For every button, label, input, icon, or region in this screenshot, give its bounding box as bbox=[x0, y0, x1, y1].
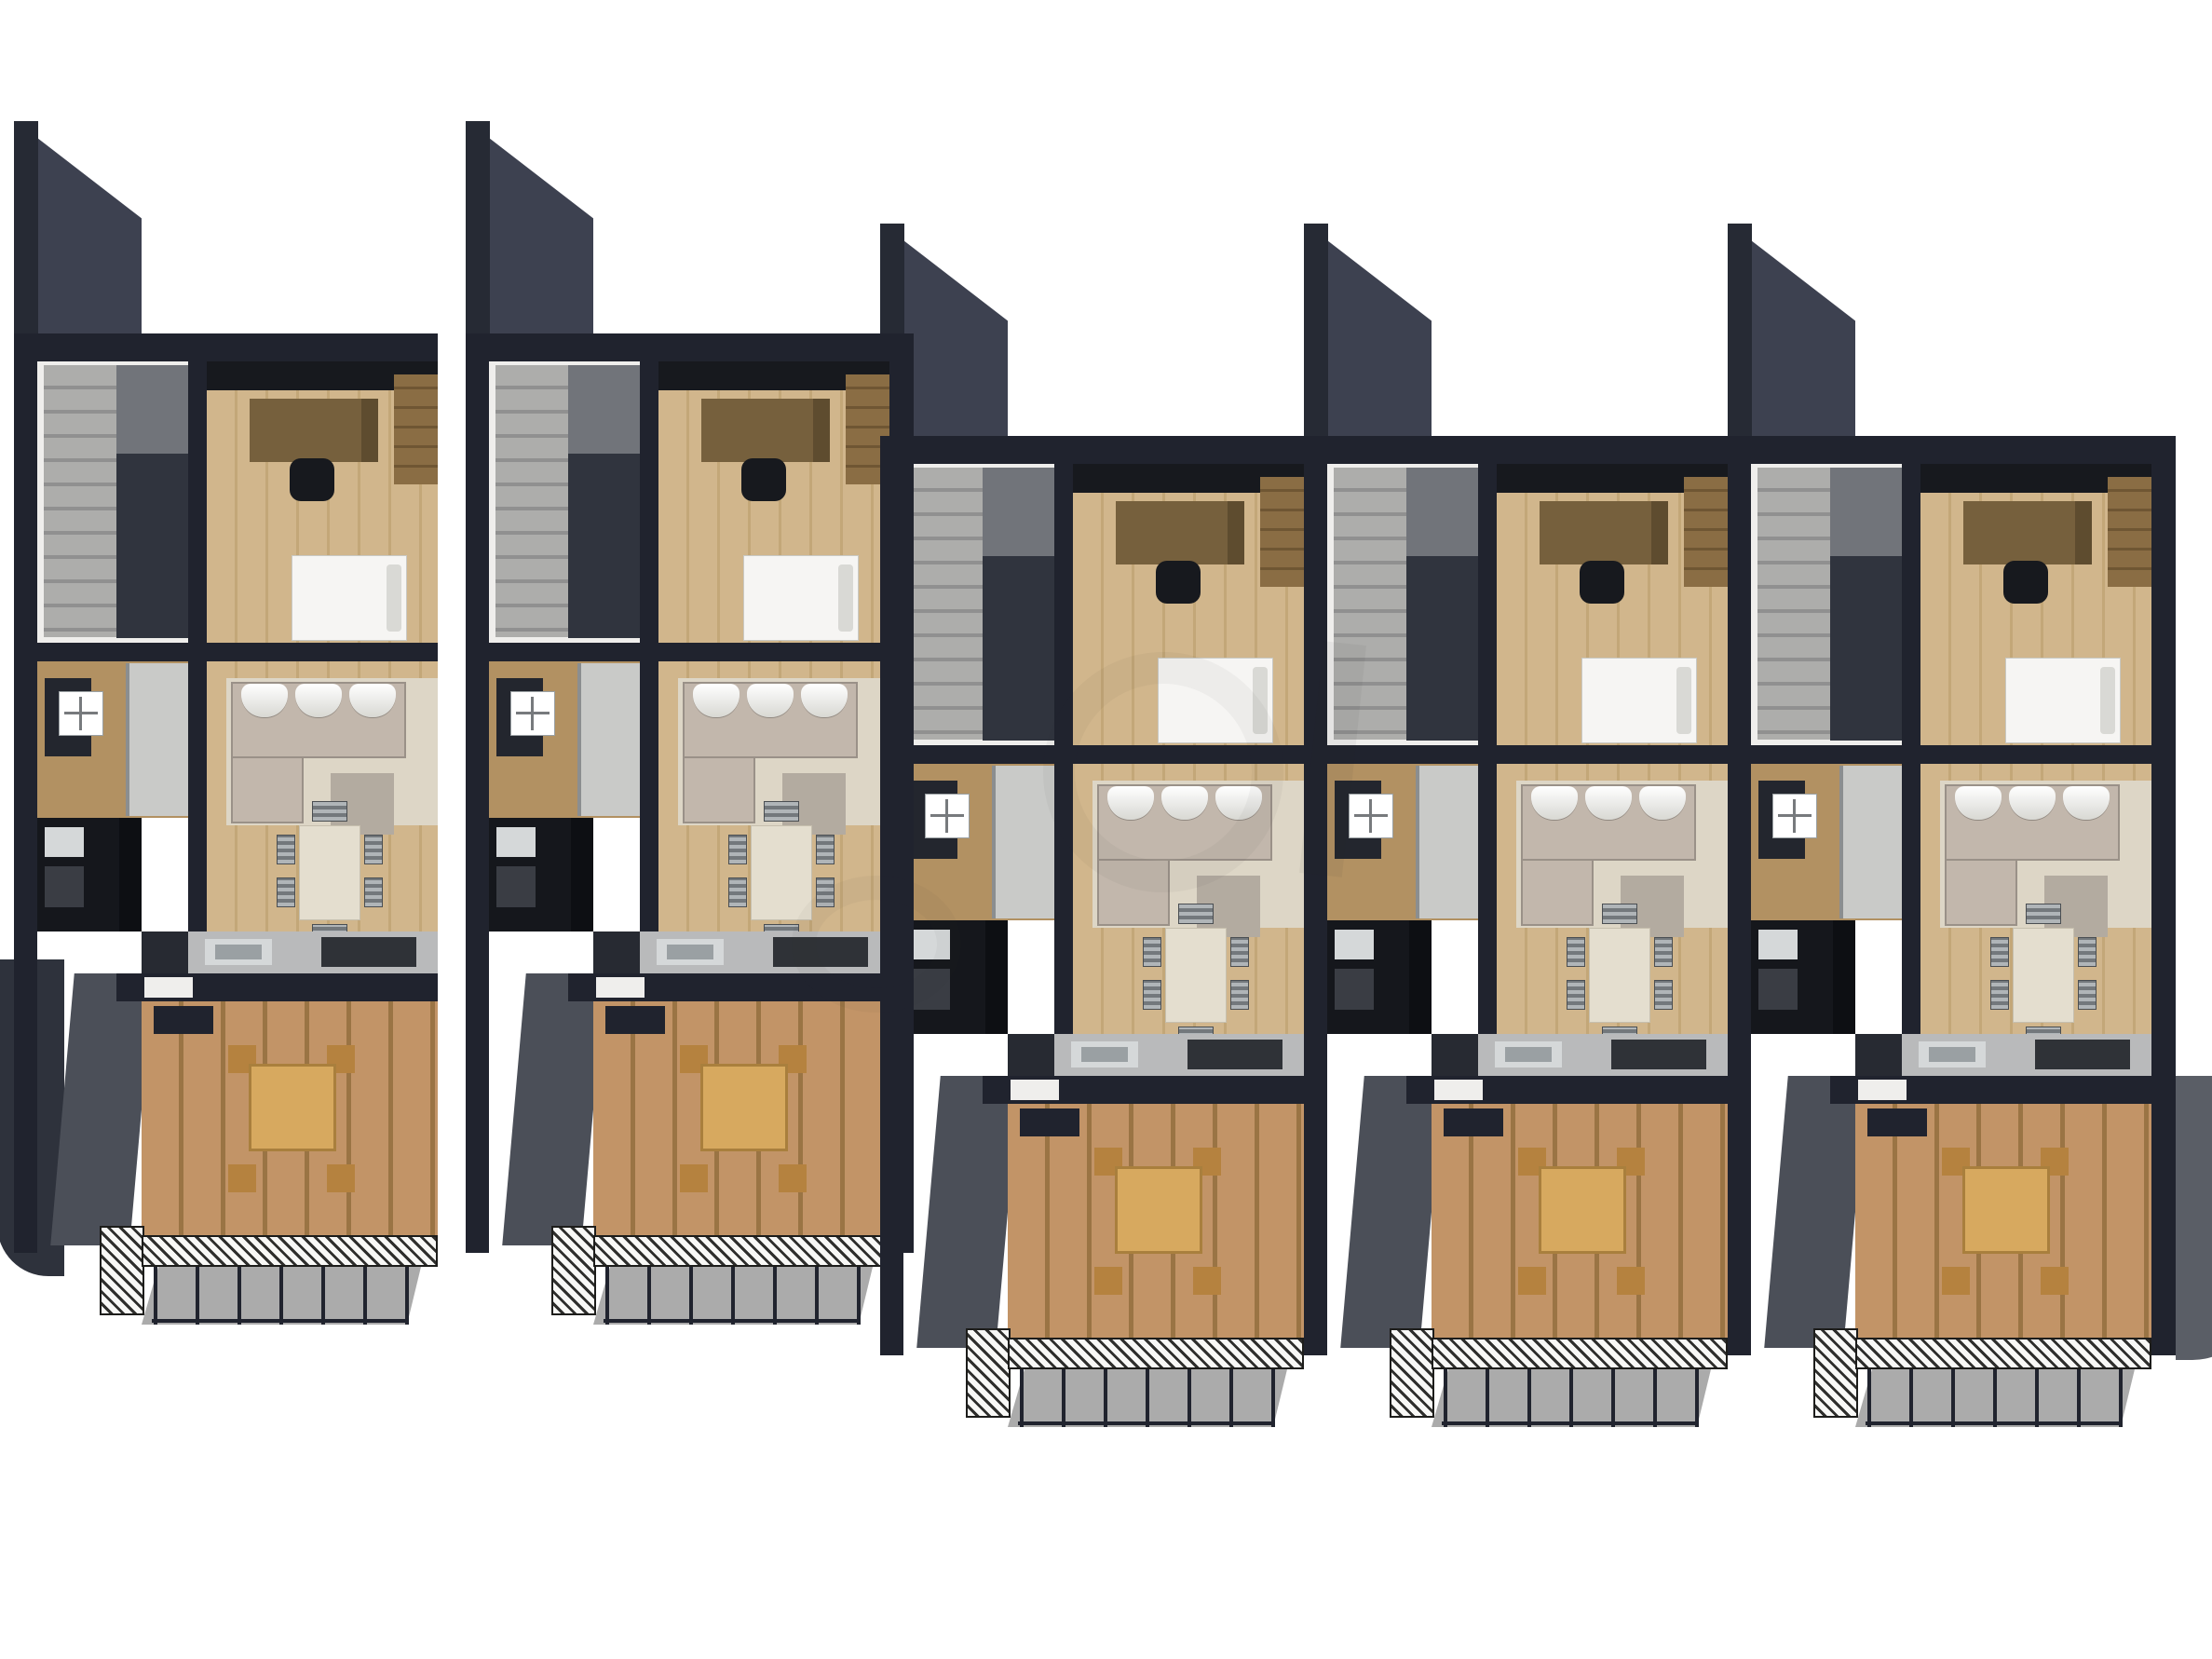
railing-post bbox=[1611, 1369, 1615, 1427]
unit-2 bbox=[466, 121, 914, 1351]
railing-post bbox=[405, 1267, 409, 1325]
outdoor-table bbox=[1962, 1166, 2050, 1254]
understair-closet bbox=[116, 454, 188, 638]
interior-wall bbox=[1327, 745, 1728, 764]
party-wall-left bbox=[466, 333, 489, 1253]
railing-post bbox=[1909, 1369, 1913, 1427]
office-chair bbox=[1156, 561, 1201, 604]
hatched-steps bbox=[1390, 1328, 1434, 1418]
railing-post bbox=[1104, 1369, 1107, 1427]
deck-side-wall bbox=[50, 973, 154, 1245]
kitchen-column bbox=[1833, 920, 1855, 1034]
floor-plan-rendering: Top-down 3D architectural rendering of f… bbox=[0, 0, 2212, 1659]
deck-door-opening bbox=[144, 977, 193, 998]
railing-post bbox=[1993, 1369, 1997, 1427]
counter-sink-basin bbox=[215, 945, 262, 959]
outdoor-stool bbox=[1094, 1267, 1122, 1295]
faucet-icon bbox=[930, 814, 964, 817]
dining-chair bbox=[1990, 980, 2009, 1010]
deck-side-wall bbox=[502, 973, 605, 1245]
deck-door-opening bbox=[1011, 1080, 1059, 1100]
outdoor-table bbox=[1539, 1166, 1626, 1254]
wardrobe bbox=[1684, 477, 1728, 587]
hatched-steps bbox=[593, 1235, 889, 1267]
kitchen-appliance bbox=[496, 827, 536, 857]
shower bbox=[126, 663, 188, 816]
dining-table bbox=[299, 825, 360, 920]
unit-1 bbox=[14, 121, 462, 1351]
desk-return bbox=[1651, 501, 1668, 564]
outer-side-wall bbox=[2176, 1076, 2212, 1360]
counter-sink-basin bbox=[667, 945, 713, 959]
shower bbox=[1416, 766, 1478, 918]
faucet-icon bbox=[1778, 814, 1812, 817]
railing-post bbox=[1020, 1369, 1024, 1427]
party-wall-left bbox=[1304, 436, 1327, 1355]
counter-sink-basin bbox=[1505, 1047, 1552, 1062]
cooktop bbox=[1611, 1040, 1706, 1069]
stairs bbox=[44, 365, 116, 637]
railing-post bbox=[1229, 1369, 1233, 1427]
railing-post bbox=[237, 1267, 241, 1325]
shower bbox=[1839, 766, 1902, 918]
outdoor-stool bbox=[327, 1164, 355, 1192]
outdoor-stool bbox=[228, 1164, 256, 1192]
desk-return bbox=[813, 399, 830, 462]
counter-sink-basin bbox=[1081, 1047, 1128, 1062]
desk bbox=[1540, 501, 1668, 564]
unit-5 bbox=[1728, 224, 2176, 1453]
hatched-steps bbox=[1432, 1338, 1728, 1369]
kitchen-column bbox=[985, 920, 1008, 1034]
dining-chair bbox=[277, 835, 295, 864]
wardrobe bbox=[1260, 477, 1304, 587]
desk bbox=[701, 399, 830, 462]
party-wall-right bbox=[2151, 436, 2176, 1355]
kitchen-appliance bbox=[496, 866, 536, 907]
deck-door-opening bbox=[1858, 1080, 1907, 1100]
railing-post bbox=[773, 1267, 777, 1325]
counter-cap bbox=[1855, 1034, 1902, 1076]
dining-chair bbox=[312, 801, 347, 822]
dining-table bbox=[2013, 928, 2074, 1023]
doormat bbox=[605, 1006, 665, 1034]
counter-sink-basin bbox=[1929, 1047, 1975, 1062]
hatched-steps bbox=[1008, 1338, 1304, 1369]
parapet-post bbox=[466, 121, 490, 361]
stairs bbox=[1757, 468, 1830, 740]
front-wall bbox=[1728, 436, 2151, 464]
outdoor-stool bbox=[1518, 1267, 1546, 1295]
desk bbox=[1116, 501, 1244, 564]
stairs bbox=[910, 468, 983, 740]
cooktop bbox=[2035, 1040, 2130, 1069]
kitchen-column bbox=[571, 818, 593, 931]
deck-door-opening bbox=[596, 977, 645, 998]
cooktop bbox=[1187, 1040, 1282, 1069]
railing-post bbox=[1444, 1369, 1447, 1427]
outdoor-stool bbox=[1617, 1267, 1645, 1295]
shower-screen bbox=[992, 766, 996, 918]
interior-wall bbox=[1751, 745, 2151, 764]
deck-side-wall bbox=[1764, 1076, 1867, 1348]
kitchen-appliance bbox=[45, 827, 84, 857]
kitchen-appliance bbox=[1758, 930, 1798, 959]
dining-table bbox=[1589, 928, 1650, 1023]
railing-post bbox=[2119, 1369, 2123, 1427]
stair-landing bbox=[1406, 468, 1478, 556]
counter-cap bbox=[142, 931, 188, 973]
pillow bbox=[1676, 667, 1691, 734]
dining-chair bbox=[1990, 937, 2009, 967]
railing-post bbox=[196, 1267, 199, 1325]
dining-chair bbox=[1143, 937, 1161, 967]
railing-post bbox=[605, 1267, 609, 1325]
parapet-post bbox=[14, 121, 38, 361]
doormat bbox=[1444, 1108, 1503, 1136]
dining-chair bbox=[2078, 937, 2097, 967]
hatched-steps bbox=[966, 1328, 1011, 1418]
cooktop bbox=[321, 937, 416, 967]
outdoor-table bbox=[1115, 1166, 1202, 1254]
dining-chair bbox=[364, 877, 383, 907]
kitchen-column bbox=[1409, 920, 1432, 1034]
deck-door-opening bbox=[1434, 1080, 1483, 1100]
parapet-slab bbox=[1327, 240, 1432, 464]
railing-post bbox=[363, 1267, 367, 1325]
hatched-steps bbox=[551, 1226, 596, 1315]
desk bbox=[250, 399, 378, 462]
dining-chair bbox=[2078, 980, 2097, 1010]
railing-post bbox=[1653, 1369, 1657, 1427]
dining-chair bbox=[1230, 937, 1249, 967]
kitchen-appliance bbox=[1335, 969, 1374, 1010]
kitchen-appliance bbox=[1335, 930, 1374, 959]
pillow bbox=[838, 564, 853, 632]
desk bbox=[1963, 501, 2092, 564]
unit-4 bbox=[1304, 224, 1752, 1453]
hatched-steps bbox=[1813, 1328, 1858, 1418]
railing-post bbox=[815, 1267, 819, 1325]
stair-landing bbox=[568, 365, 640, 454]
dining-chair bbox=[1654, 937, 1673, 967]
understair-closet bbox=[568, 454, 640, 638]
office-chair bbox=[1580, 561, 1624, 604]
hatched-steps bbox=[142, 1235, 438, 1267]
interior-wall bbox=[37, 643, 438, 661]
desk-return bbox=[361, 399, 378, 462]
doormat bbox=[1020, 1108, 1079, 1136]
railing-rail bbox=[1442, 1421, 1699, 1425]
dining-chair bbox=[1143, 980, 1161, 1010]
railing-post bbox=[1271, 1369, 1275, 1427]
shower-screen bbox=[577, 663, 581, 816]
dining-table bbox=[1165, 928, 1227, 1023]
parapet-slab bbox=[903, 240, 1008, 464]
outdoor-stool bbox=[1942, 1267, 1970, 1295]
outdoor-table bbox=[249, 1064, 336, 1151]
kitchen-appliance bbox=[1758, 969, 1798, 1010]
railing-post bbox=[1951, 1369, 1955, 1427]
desk-return bbox=[1228, 501, 1244, 564]
pillow bbox=[2100, 667, 2115, 734]
understair-closet bbox=[1830, 556, 1902, 741]
dining-chair bbox=[1230, 980, 1249, 1010]
office-chair bbox=[741, 458, 786, 501]
hatched-steps bbox=[1855, 1338, 2151, 1369]
faint-watermark bbox=[792, 876, 961, 1013]
dining-chair bbox=[816, 835, 835, 864]
office-chair bbox=[290, 458, 334, 501]
outdoor-stool bbox=[680, 1164, 708, 1192]
dining-chair bbox=[1654, 980, 1673, 1010]
dining-chair bbox=[728, 877, 747, 907]
pillow bbox=[387, 564, 401, 632]
desk-return bbox=[2075, 501, 2092, 564]
dining-chair bbox=[364, 835, 383, 864]
deck-side-wall bbox=[916, 1076, 1020, 1348]
faucet-icon bbox=[1354, 814, 1388, 817]
railing-post bbox=[2077, 1369, 2081, 1427]
stair-landing bbox=[1830, 468, 1902, 556]
wardrobe bbox=[2108, 477, 2151, 587]
dining-table bbox=[751, 825, 812, 920]
outdoor-stool bbox=[2041, 1267, 2069, 1295]
parapet-slab bbox=[1751, 240, 1855, 464]
railing-post bbox=[1527, 1369, 1531, 1427]
stair-landing bbox=[116, 365, 188, 454]
party-wall-left bbox=[14, 333, 37, 1253]
outdoor-table bbox=[700, 1064, 788, 1151]
railing-rail bbox=[152, 1319, 409, 1323]
wardrobe bbox=[394, 374, 438, 484]
parapet-slab bbox=[489, 138, 593, 361]
office-chair bbox=[2003, 561, 2048, 604]
shower-screen bbox=[1839, 766, 1843, 918]
dining-chair bbox=[1567, 980, 1585, 1010]
kitchen-column bbox=[119, 818, 142, 931]
railing-rail bbox=[1018, 1421, 1275, 1425]
railing-post bbox=[321, 1267, 325, 1325]
outdoor-stool bbox=[1193, 1267, 1221, 1295]
understair-closet bbox=[1406, 556, 1478, 741]
outdoor-stool bbox=[779, 1164, 807, 1192]
shower bbox=[577, 663, 640, 816]
faucet-icon bbox=[64, 712, 98, 714]
interior-wall bbox=[489, 643, 889, 661]
dining-chair bbox=[2026, 904, 2061, 924]
front-wall bbox=[880, 436, 1304, 464]
deck-side-wall bbox=[1340, 1076, 1444, 1348]
front-wall bbox=[14, 333, 438, 361]
railing-post bbox=[731, 1267, 735, 1325]
parapet-post bbox=[1304, 224, 1328, 464]
dining-chair bbox=[277, 877, 295, 907]
shower-screen bbox=[1416, 766, 1419, 918]
dining-chair bbox=[1602, 904, 1637, 924]
railing-post bbox=[2035, 1369, 2039, 1427]
railing-post bbox=[1569, 1369, 1573, 1427]
railing-post bbox=[647, 1267, 651, 1325]
parapet-post bbox=[1728, 224, 1752, 464]
understair-closet bbox=[983, 556, 1054, 741]
shower-screen bbox=[126, 663, 129, 816]
dining-chair bbox=[1178, 904, 1214, 924]
dining-chair bbox=[728, 835, 747, 864]
railing-post bbox=[1146, 1369, 1149, 1427]
front-wall bbox=[1304, 436, 1728, 464]
railing-rail bbox=[1866, 1421, 2123, 1425]
railing-post bbox=[857, 1267, 861, 1325]
kitchen-appliance bbox=[45, 866, 84, 907]
railing-rail bbox=[604, 1319, 861, 1323]
doormat bbox=[1867, 1108, 1927, 1136]
counter-cap bbox=[593, 931, 640, 973]
faint-watermark bbox=[1043, 652, 1283, 892]
faucet-icon bbox=[516, 712, 550, 714]
railing-post bbox=[1867, 1369, 1871, 1427]
doormat bbox=[154, 1006, 213, 1034]
railing-post bbox=[689, 1267, 693, 1325]
railing-post bbox=[1695, 1369, 1699, 1427]
dining-chair bbox=[764, 801, 799, 822]
railing-post bbox=[1486, 1369, 1489, 1427]
counter-cap bbox=[1432, 1034, 1478, 1076]
front-wall bbox=[466, 333, 889, 361]
railing-post bbox=[154, 1267, 157, 1325]
dining-chair bbox=[1567, 937, 1585, 967]
parapet-slab bbox=[37, 138, 142, 361]
stairs bbox=[495, 365, 568, 637]
railing-post bbox=[279, 1267, 283, 1325]
railing-post bbox=[1062, 1369, 1065, 1427]
railing-post bbox=[1187, 1369, 1191, 1427]
hatched-steps bbox=[100, 1226, 144, 1315]
stair-landing bbox=[983, 468, 1054, 556]
party-wall-left bbox=[1728, 436, 1751, 1355]
counter-cap bbox=[1008, 1034, 1054, 1076]
